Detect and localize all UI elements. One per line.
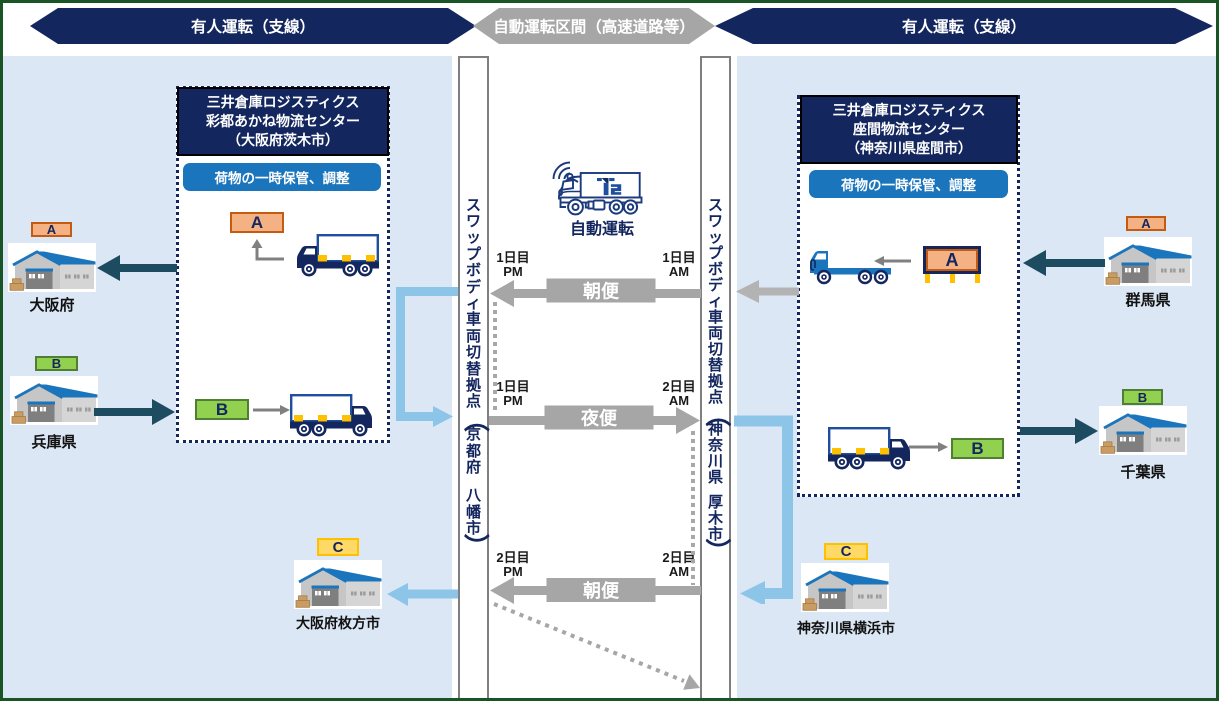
svg-text:夜便: 夜便: [580, 408, 618, 429]
svg-text:朝便: 朝便: [583, 281, 620, 302]
